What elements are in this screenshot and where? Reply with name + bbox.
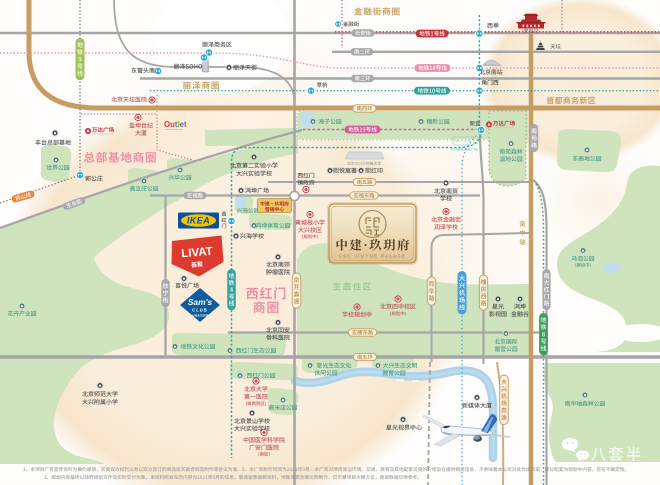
svg-text:CSC JIUYUE PALACE: CSC JIUYUE PALACE xyxy=(339,254,407,259)
svg-text:CLUB: CLUB xyxy=(192,308,208,313)
svg-text:Sam's: Sam's xyxy=(188,297,213,307)
svg-text:Οutlet: Οutlet xyxy=(164,120,187,129)
svg-text:IKEA: IKEA xyxy=(187,216,210,226)
